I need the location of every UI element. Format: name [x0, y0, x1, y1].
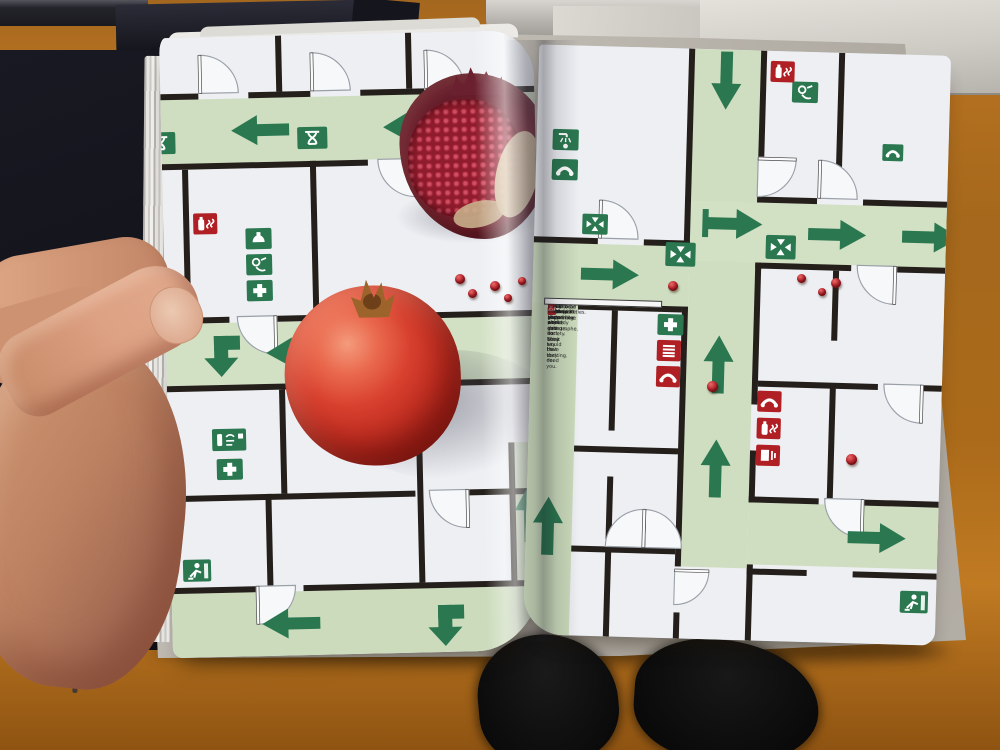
fire-alarm-icon [756, 445, 781, 467]
pomegranate-crown [351, 279, 396, 318]
fire-phone-icon [656, 366, 681, 388]
safety-shower-icon [552, 129, 579, 151]
door-arcs [198, 49, 476, 625]
pomegranate-seed [504, 294, 512, 302]
left-page [159, 30, 547, 658]
floor-plan-right [523, 44, 951, 645]
pomegranate-seed [468, 289, 477, 298]
pharmacy-icon [297, 127, 327, 150]
emergency-exit-icon [183, 559, 211, 582]
fire-extinguisher-icon [193, 213, 217, 235]
pomegranate-seed [455, 274, 465, 284]
right-page: +Every day I go to work and do what I ha… [523, 44, 951, 645]
first-aid-icon [247, 280, 273, 302]
photo-of-open-book: +Every day I go to work and do what I ha… [0, 0, 1000, 750]
assembly-point-icon [765, 235, 796, 260]
pomegranate-seed [818, 288, 826, 296]
pomegranate-half-shadow [394, 186, 545, 245]
pomegranate-shadow [342, 347, 547, 482]
pomegranate-whole [283, 284, 463, 468]
eye-wash-station-icon [212, 428, 246, 451]
fire-extinguisher-icon [770, 61, 795, 83]
pomegranate-seed [797, 274, 806, 283]
pomegranate-skin [398, 72, 547, 241]
fire-phone-icon [757, 391, 782, 413]
emergency-phone-icon [552, 159, 579, 181]
pomegranate-seed [846, 454, 857, 465]
walls [159, 30, 546, 594]
fire-blanket-icon [657, 340, 682, 362]
eye-wash-icon [792, 81, 819, 103]
pomegranate-half [398, 72, 547, 241]
emergency-phone-icon [882, 144, 903, 161]
fire-extinguisher-icon [756, 418, 781, 440]
tree-shadow [72, 598, 80, 693]
eye-wash-icon [246, 254, 272, 276]
pharmacy-icon [159, 132, 176, 155]
first-aid-icon [657, 314, 684, 336]
first-aid-icon [217, 459, 243, 481]
pomegranate-calyx [450, 67, 503, 96]
assembly-point-icon [582, 214, 608, 235]
pomegranate-seed [490, 281, 500, 291]
pomegranate-membrane [451, 195, 508, 232]
escape-route-arrows [199, 109, 547, 652]
emergency-exit-icon [900, 591, 929, 614]
pomegranate-seeds-face [406, 98, 521, 219]
breathing-mask-icon [245, 228, 271, 250]
assembly-point-icon [665, 242, 696, 267]
floor-plan-left [159, 30, 547, 658]
pomegranate-seed [707, 381, 718, 392]
pomegranate-seed [518, 277, 526, 285]
statement-text: Just a small earthquake. [548, 304, 578, 316]
pomegranate-seed [831, 278, 841, 288]
pomegranate-seed [668, 281, 678, 291]
